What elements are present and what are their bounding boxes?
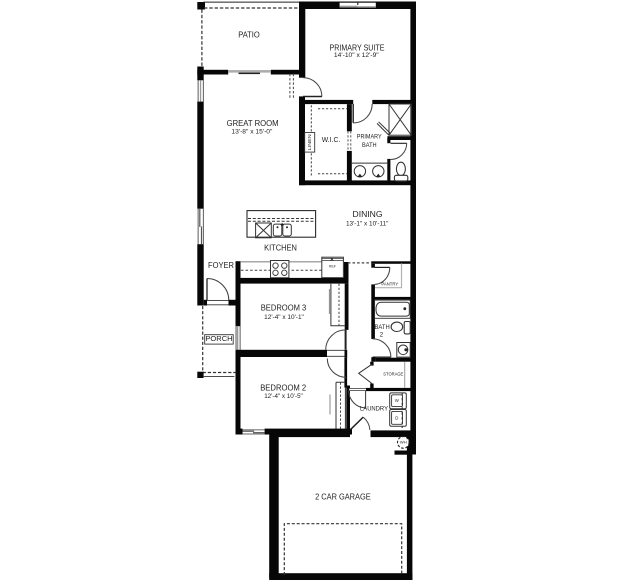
svg-text:W.I.C.: W.I.C.	[322, 137, 341, 144]
svg-text:PRIMARY SUITE: PRIMARY SUITE	[330, 43, 385, 52]
svg-text:PANTRY: PANTRY	[381, 282, 398, 287]
svg-text:BEDROOM 3: BEDROOM 3	[261, 304, 307, 313]
svg-text:13'-1" x 10'-11": 13'-1" x 10'-11"	[346, 221, 389, 228]
svg-text:12'-4" x 10'-5": 12'-4" x 10'-5"	[264, 393, 303, 400]
svg-text:LINEN: LINEN	[307, 134, 312, 150]
svg-text:PATIO: PATIO	[238, 30, 260, 39]
svg-text:KITCHEN: KITCHEN	[264, 243, 297, 252]
svg-text:12'-4" x 10'-1": 12'-4" x 10'-1"	[264, 314, 304, 321]
svg-text:LAUNDRY: LAUNDRY	[360, 405, 389, 412]
svg-text:STORAGE: STORAGE	[383, 372, 403, 377]
svg-text:BATH: BATH	[362, 142, 377, 149]
svg-text:BEDROOM 2: BEDROOM 2	[260, 383, 306, 392]
svg-text:DINING: DINING	[353, 210, 383, 219]
svg-text:BATH: BATH	[375, 324, 391, 331]
svg-text:2: 2	[380, 331, 384, 338]
svg-text:WH: WH	[400, 441, 408, 445]
svg-text:PRIMARY: PRIMARY	[357, 134, 382, 141]
svg-text:REF: REF	[329, 265, 336, 269]
svg-text:FOYER: FOYER	[208, 261, 234, 270]
svg-text:14'-10" x 12'-9": 14'-10" x 12'-9"	[334, 52, 379, 59]
svg-text:2 CAR GARAGE: 2 CAR GARAGE	[315, 492, 371, 501]
svg-text:PORCH: PORCH	[205, 336, 232, 343]
svg-text:D: D	[395, 415, 398, 420]
svg-text:13'-8" x 15'-0": 13'-8" x 15'-0"	[231, 129, 273, 136]
svg-text:GREAT ROOM: GREAT ROOM	[227, 119, 279, 128]
